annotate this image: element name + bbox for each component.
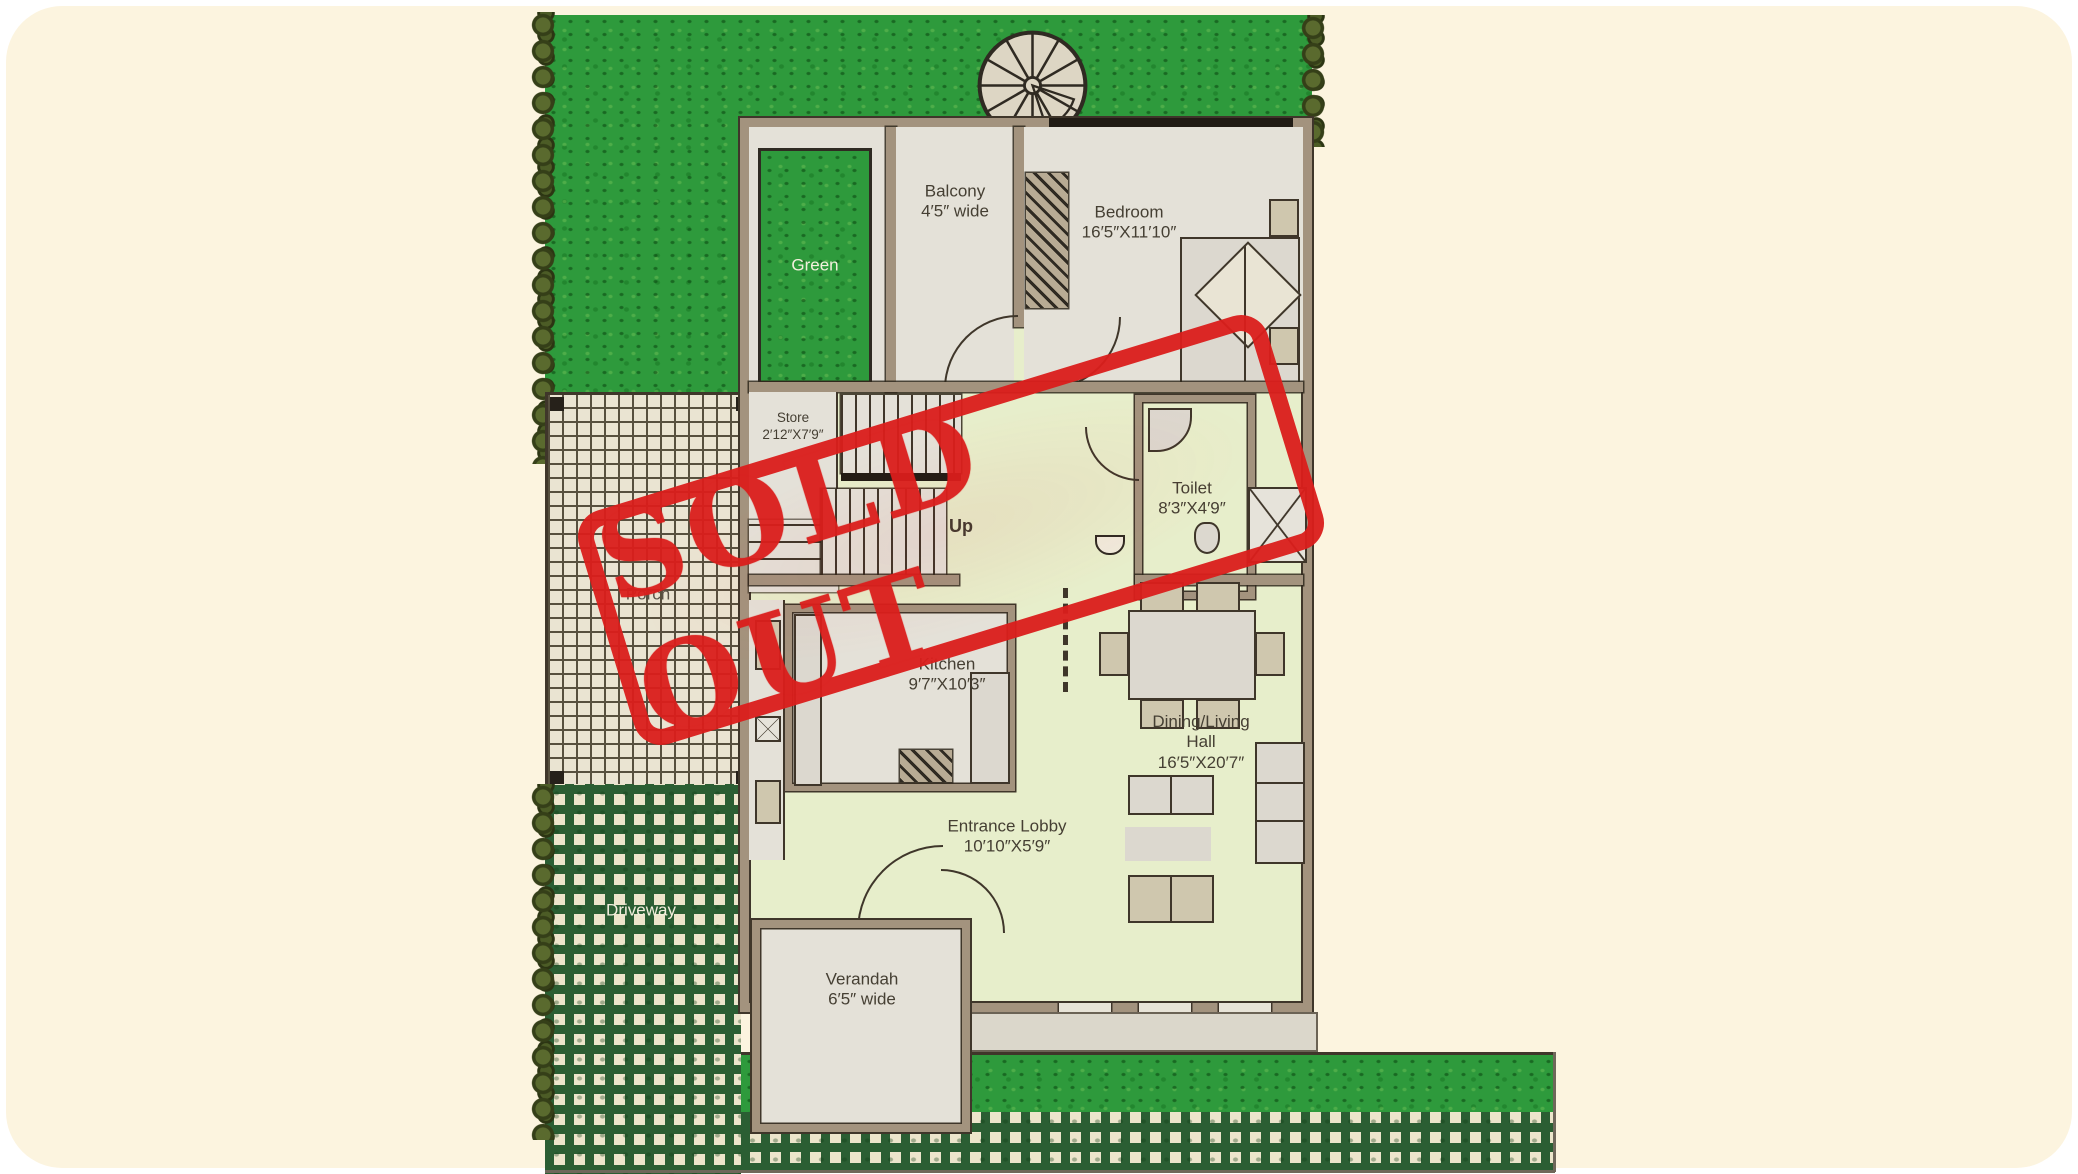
wardrobe-icon (1026, 173, 1068, 308)
bedroom-window-band (1049, 118, 1293, 127)
driveway-label: Driveway (606, 901, 676, 922)
side-table-icon (1128, 775, 1172, 815)
nightstand-icon (1269, 199, 1299, 237)
dining-table-icon (1128, 610, 1256, 700)
armchair-icon (1128, 875, 1172, 923)
cream-canvas: Porch Driveway Green Balcony (6, 6, 2072, 1168)
lawn-left (545, 15, 756, 392)
verandah-room: Verandah 6′5″ wide (752, 920, 970, 1132)
hedge-driveway-icon (528, 784, 560, 1140)
green-patch: Green (758, 148, 872, 384)
sofa-cushion-line (1257, 782, 1303, 784)
utility-fixture (755, 780, 781, 824)
lobby-label: Entrance Lobby 10′10″X5′9″ (947, 796, 1066, 879)
stove-icon (900, 750, 952, 782)
sofa-cushion-line (1257, 820, 1303, 822)
green-label: Green (791, 256, 838, 277)
coffee-table-icon (1125, 827, 1211, 861)
window (1219, 1003, 1271, 1012)
armchair-icon (1170, 875, 1214, 923)
side-table-icon (1170, 775, 1214, 815)
window (1139, 1003, 1191, 1012)
bedroom-label: Bedroom 16′5″X11′10″ (1082, 182, 1177, 265)
dining-chair-icon (1255, 632, 1285, 676)
porch-column (550, 771, 564, 785)
dining-chair-icon (1099, 632, 1129, 676)
porch-column (550, 397, 564, 411)
plot-bottom-line (545, 1170, 1555, 1173)
exterior-step (970, 1012, 1318, 1052)
window (1059, 1003, 1111, 1012)
wall (886, 127, 896, 392)
balcony-label: Balcony 4′5″ wide (920, 161, 990, 244)
verandah-label: Verandah 6′5″ wide (826, 949, 899, 1032)
entrance-door-arc (857, 845, 943, 931)
driveway-area: Driveway (545, 784, 741, 1174)
sofa-icon (1255, 742, 1305, 864)
plot-right-line (1553, 1052, 1556, 1172)
wall (1014, 127, 1024, 327)
floorplan-page: Porch Driveway Green Balcony (0, 0, 2078, 1174)
